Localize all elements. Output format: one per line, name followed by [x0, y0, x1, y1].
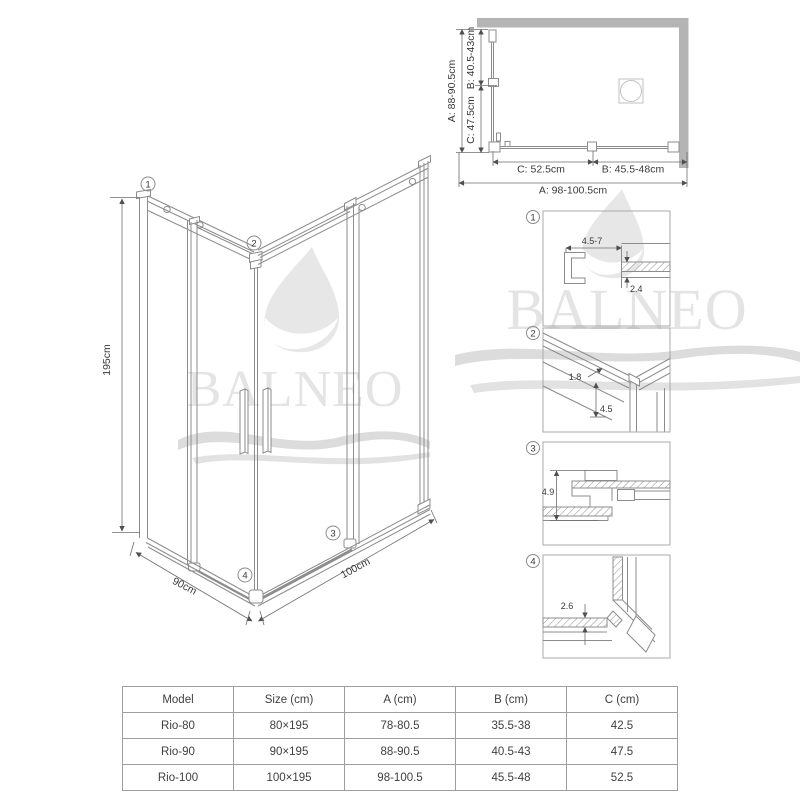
- spec-table: Model Size (cm) A (cm) B (cm) C (cm) Rio…: [122, 686, 678, 791]
- spec-table-row: Rio-100 100×195 98-100.5 45.5-48 52.5: [123, 765, 678, 791]
- detail-marker-4: 4: [238, 568, 252, 582]
- cell-c: 52.5: [567, 765, 678, 791]
- dim-label-c-bottom: C: 52.5cm: [517, 164, 565, 176]
- cell-a: 78-80.5: [345, 713, 456, 739]
- cell-size: 80×195: [234, 713, 345, 739]
- dim-label-b-left: B: 40.5-43cm: [465, 27, 477, 90]
- svg-text:4: 4: [242, 571, 247, 582]
- svg-text:4: 4: [530, 557, 535, 568]
- cell-c: 47.5: [567, 739, 678, 765]
- wall-profile-top: [489, 30, 496, 42]
- dim-label: 2.6: [561, 601, 574, 611]
- wall-profile-right: [668, 142, 679, 152]
- cell-size: 100×195: [234, 765, 345, 791]
- col-header-b: B (cm): [456, 687, 567, 713]
- watermark-right: BALNEO: [455, 189, 800, 393]
- col-header-c: C (cm): [567, 687, 678, 713]
- dim-label-height: 195cm: [101, 344, 113, 376]
- cell-model: Rio-80: [123, 713, 234, 739]
- cell-model: Rio-90: [123, 739, 234, 765]
- plan-view: A: 88-90.5cm B: 40.5-43cm C: 47.5cm C: 5…: [446, 18, 689, 197]
- spec-table-row: Rio-80 80×195 78-80.5 35.5-38 42.5: [123, 713, 678, 739]
- door-handle-right: [263, 388, 271, 453]
- svg-text:2: 2: [251, 239, 256, 250]
- svg-text:3: 3: [330, 529, 335, 540]
- drain-symbol: [619, 79, 643, 103]
- dim-label-a-left: A: 88-90.5cm: [446, 60, 458, 123]
- watermark-brand-text: BALNEO: [187, 361, 404, 418]
- detail-box-4: 2.6: [543, 555, 670, 658]
- door-handle-left: [240, 389, 248, 454]
- cell-b: 45.5-48: [456, 765, 567, 791]
- detail-marker-2: 2: [247, 236, 261, 250]
- svg-text:3: 3: [530, 444, 535, 455]
- dim-label: 1.8: [569, 372, 582, 382]
- spec-table-row: Rio-90 90×195 88-90.5 40.5-43 47.5: [123, 739, 678, 765]
- wall-right: [679, 18, 689, 168]
- cell-a: 98-100.5: [345, 765, 456, 791]
- cell-a: 88-90.5: [345, 739, 456, 765]
- cell-size: 90×195: [234, 739, 345, 765]
- dim-label-a-bottom: A: 98-100.5cm: [539, 185, 608, 197]
- dim-label-width: 100cm: [339, 555, 373, 581]
- dim-label: 4.5-7: [582, 236, 603, 246]
- detail-box-number-1: 1: [527, 211, 540, 224]
- dim-label-b-bottom: B: 45.5-48cm: [602, 164, 665, 176]
- technical-drawing-sheet: BALNEO BALNEO: [0, 0, 800, 800]
- dim-label-depth: 90cm: [170, 575, 199, 598]
- svg-text:2: 2: [530, 329, 535, 340]
- detail-marker-1: 1: [141, 177, 155, 191]
- wave-swoosh: [455, 346, 800, 366]
- dim-label-c-left: C: 47.5cm: [465, 96, 477, 144]
- dim-label: 2.4: [630, 284, 643, 294]
- col-header-a: A (cm): [345, 687, 456, 713]
- corner-profile: [489, 142, 500, 152]
- detail-marker-3: 3: [326, 526, 340, 540]
- door-clip: [588, 142, 597, 151]
- spec-table-header-row: Model Size (cm) A (cm) B (cm) C (cm): [123, 687, 678, 713]
- wave-swoosh: [178, 431, 430, 450]
- svg-text:1: 1: [145, 180, 150, 191]
- cell-model: Rio-100: [123, 765, 234, 791]
- col-header-model: Model: [123, 687, 234, 713]
- cell-b: 40.5-43: [456, 739, 567, 765]
- wall-top: [477, 18, 688, 28]
- detail-box-number-3: 3: [527, 442, 540, 455]
- drawing-svg: BALNEO BALNEO: [0, 0, 800, 800]
- watermark-center: BALNEO: [178, 247, 430, 464]
- col-header-size: Size (cm): [234, 687, 345, 713]
- detail-box-number-4: 4: [527, 555, 540, 568]
- dim-label: 4.9: [542, 487, 555, 497]
- cell-c: 42.5: [567, 713, 678, 739]
- cell-b: 35.5-38: [456, 713, 567, 739]
- svg-text:1: 1: [530, 213, 535, 224]
- dim-label: 4.5: [600, 404, 613, 414]
- detail-box-2: 1.8 4.5: [543, 328, 670, 432]
- detail-box-3: 4.9: [542, 442, 670, 545]
